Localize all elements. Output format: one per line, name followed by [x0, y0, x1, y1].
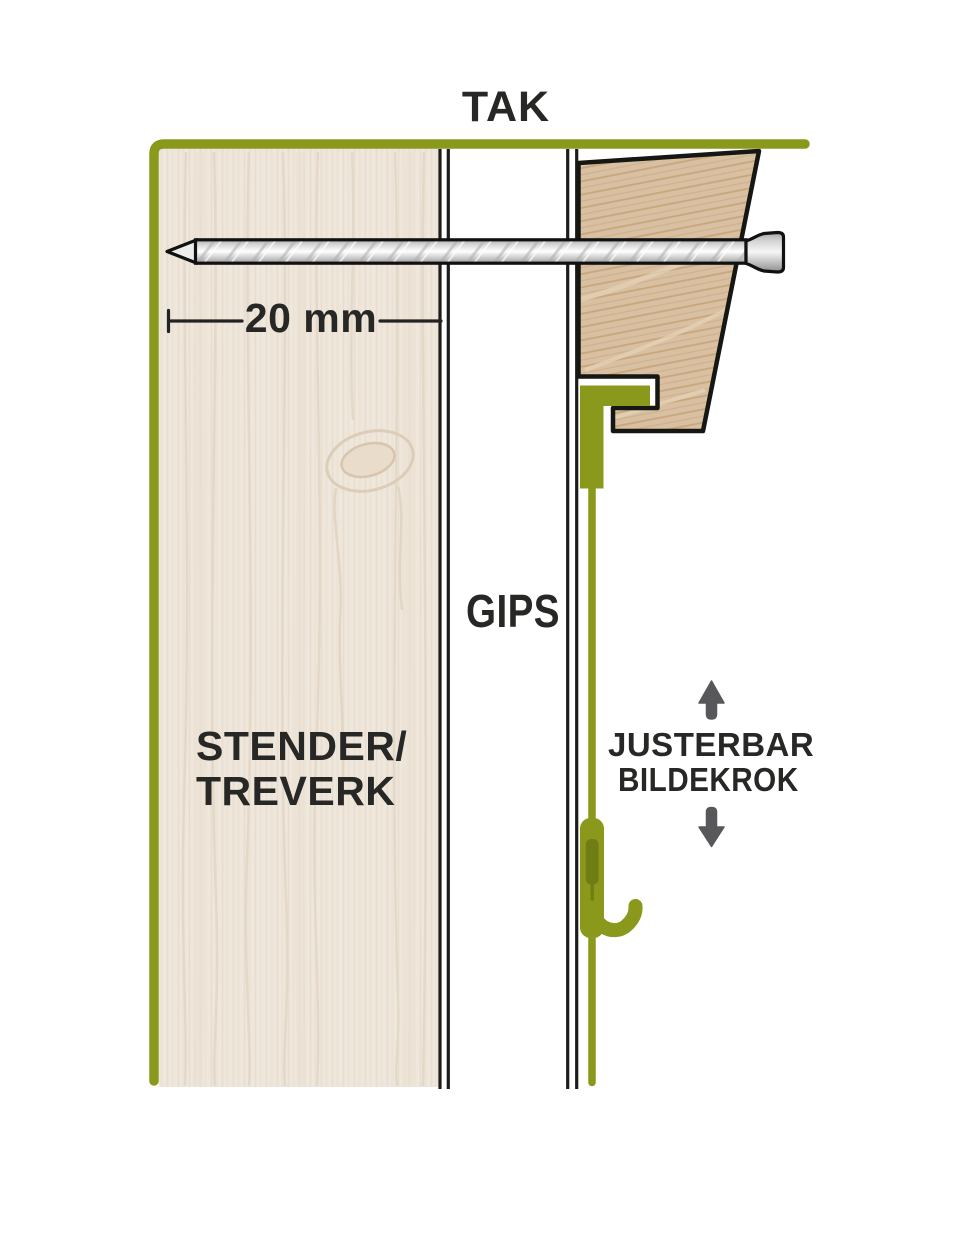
ceiling-label: TAK — [406, 86, 606, 129]
up-arrow-icon — [699, 681, 724, 719]
hook-slot — [586, 839, 599, 885]
down-arrow-icon — [699, 808, 724, 847]
diagram-canvas: TAK 20 mm GIPS STENDER/ TREVERK JUSTERBA… — [0, 0, 960, 1239]
wood-stud — [159, 149, 441, 1087]
rail-cleat — [580, 386, 650, 489]
hook-label-line1: JUSTERBAR — [608, 728, 808, 761]
picture-hook — [580, 818, 636, 938]
dimension-label: 20 mm — [211, 298, 411, 339]
nail-thread — [196, 240, 747, 263]
hook-label-line2: BILDEKROK — [618, 763, 798, 796]
stud-label-line2: TREVERK — [196, 771, 395, 812]
gips-label: GIPS — [429, 588, 597, 634]
stud-label-line1: STENDER/ — [196, 726, 407, 767]
nail-head — [746, 233, 784, 273]
